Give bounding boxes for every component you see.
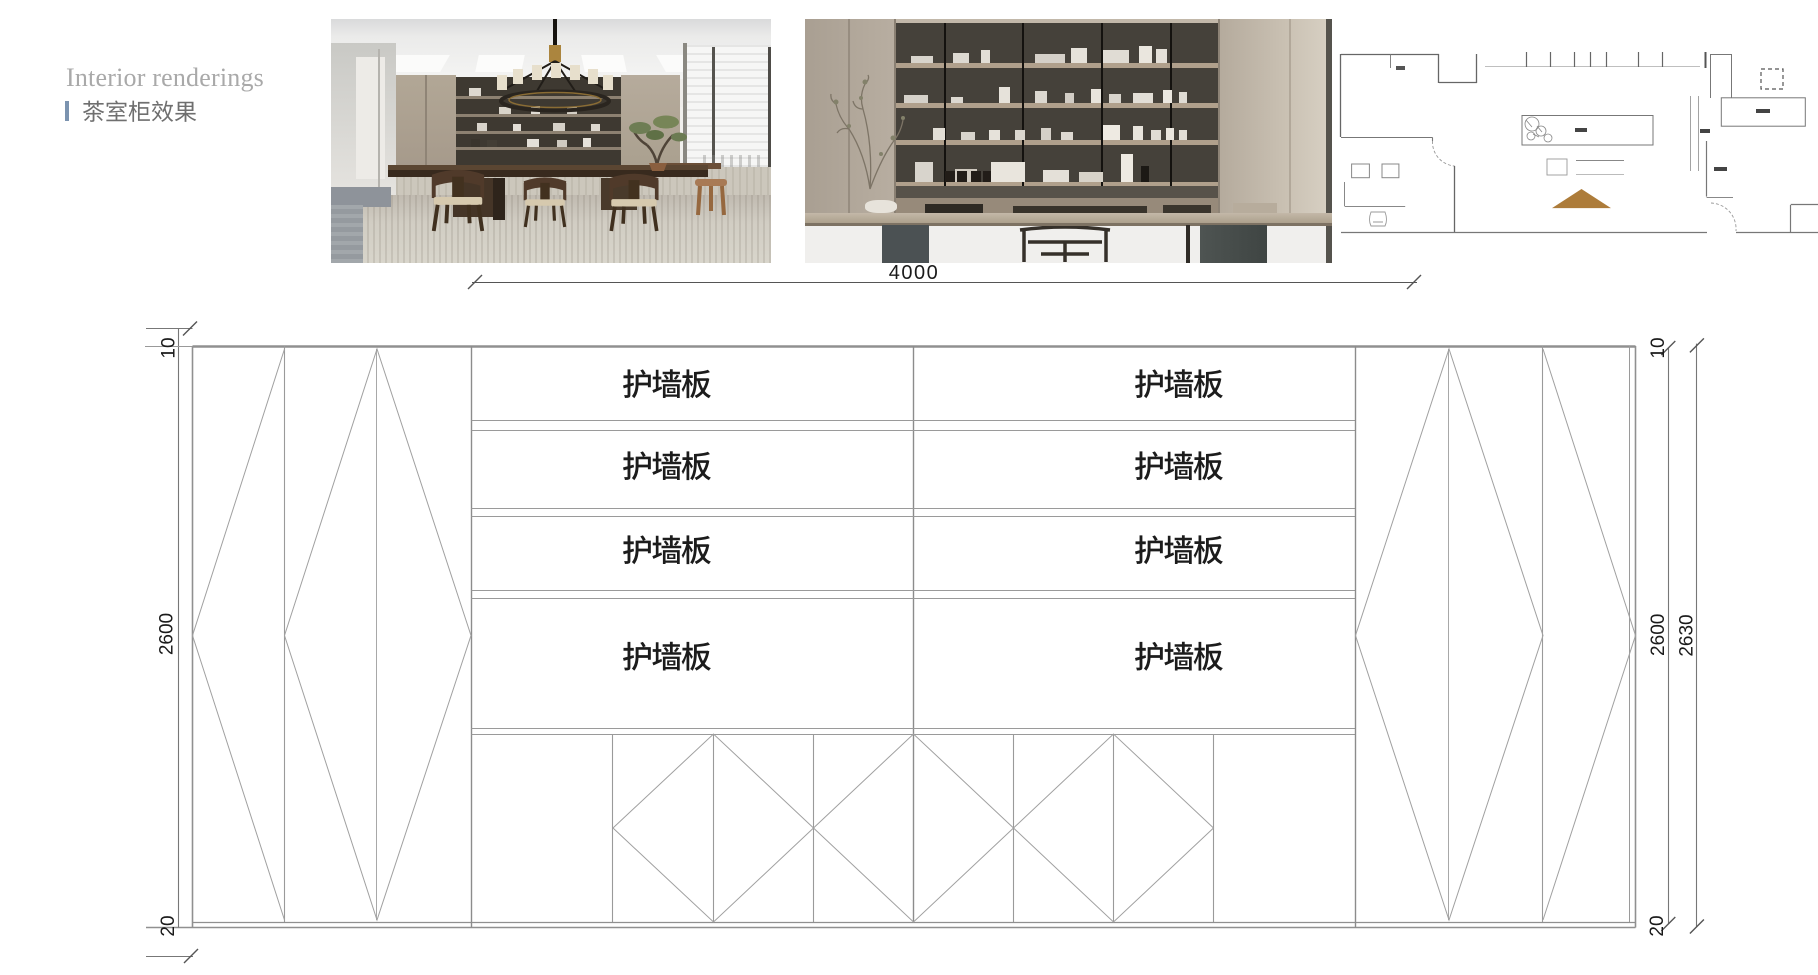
svg-text:2600: 2600: [157, 613, 178, 655]
svg-text:20: 20: [1647, 915, 1668, 936]
svg-text:20: 20: [158, 915, 179, 936]
svg-text:10: 10: [1648, 337, 1669, 358]
svg-text:10: 10: [159, 337, 180, 358]
svg-text:4000: 4000: [889, 262, 940, 284]
svg-text:2600: 2600: [1648, 614, 1669, 656]
svg-text:2630: 2630: [1677, 614, 1698, 656]
